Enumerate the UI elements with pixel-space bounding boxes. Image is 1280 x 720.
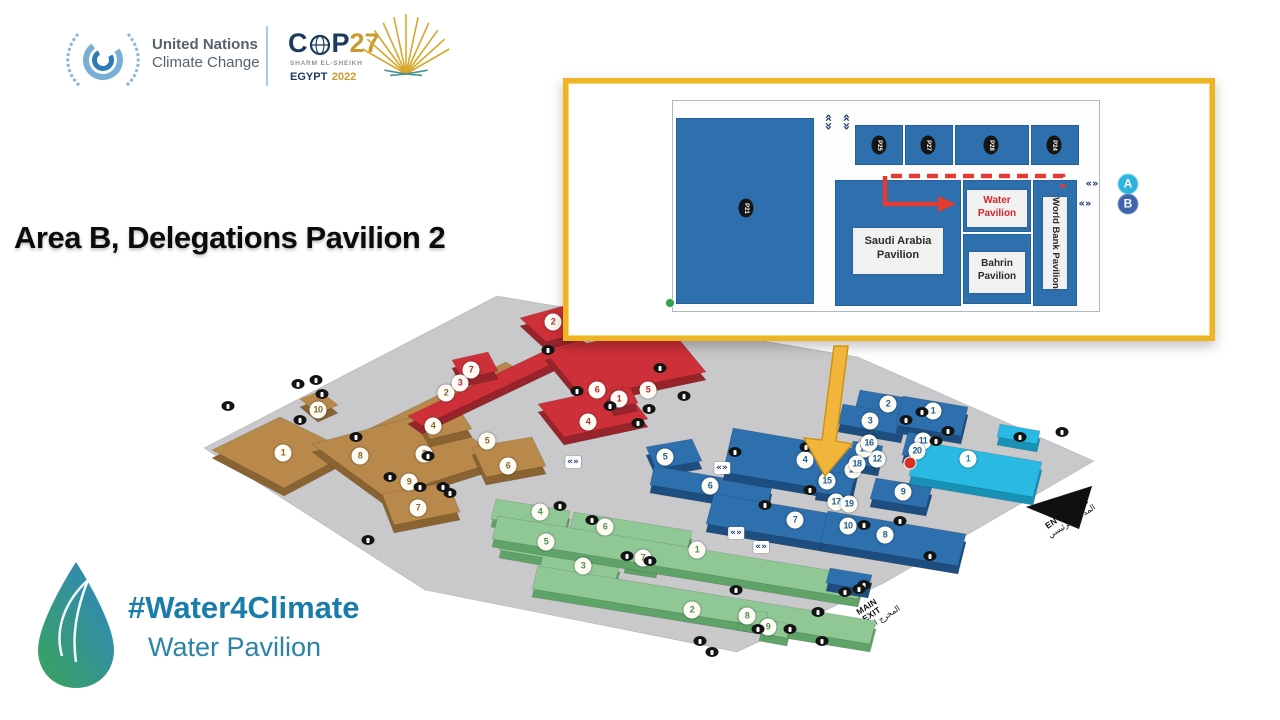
chevron-icon: «» (1079, 199, 1092, 210)
facility-icon (916, 407, 929, 417)
un-climate-change-logo (58, 22, 150, 94)
cop-year: 2022 (332, 71, 356, 83)
world-bank-label: World Bank Pavilion (1043, 197, 1067, 289)
un-wordmark: United Nations Climate Change (152, 36, 260, 72)
cop-p: P (332, 28, 350, 59)
green-dot-icon (665, 298, 675, 308)
facility-icon (930, 436, 943, 446)
building-badge-tan-6: 6 (500, 458, 517, 475)
building-badge-green-7: 7 (635, 550, 652, 567)
chevron-icon: «» (1086, 179, 1099, 190)
building-badge-blue-13: 13 (856, 441, 873, 458)
facility-icon (316, 389, 329, 399)
building-badge-red-2: 2 (545, 314, 562, 331)
facility-icon (654, 363, 667, 373)
facility-icon (924, 551, 937, 561)
facility-icon (942, 426, 955, 436)
building-badge-red-5: 5 (640, 382, 657, 399)
facility-icon (678, 391, 691, 401)
saudi-label-line2: Pavilion (853, 248, 943, 262)
inset-big-hall (676, 118, 814, 304)
facility-icon (586, 515, 599, 525)
pavilion-code-badge: P28 (984, 136, 999, 155)
inset-frame (563, 78, 1215, 341)
crossing-chevron-icon: «» (714, 462, 730, 474)
facility-icon (644, 556, 657, 566)
red-location-marker (904, 457, 917, 470)
saudi-arabia-label: Saudi Arabia Pavilion (853, 228, 943, 274)
building-badge-tan-10: 10 (310, 402, 327, 419)
route-arrowhead-icon (938, 196, 956, 212)
building-badge-blue-1: 1 (925, 403, 942, 420)
saudi-label-line1: Saudi Arabia (853, 234, 943, 248)
bahrain-label: Bahrin Pavilion (969, 252, 1025, 293)
building-badge-blue-2: 2 (880, 396, 897, 413)
cop27-subtitle: SHARM EL-SHEIKH EGYPT 2022 (290, 60, 363, 85)
facility-icon (621, 551, 634, 561)
facility-icon (706, 647, 719, 657)
facility-icon (730, 585, 743, 595)
bahrain-label-line1: Bahrin (969, 257, 1025, 270)
header-divider (266, 26, 268, 86)
building-badge-blue-4: 4 (797, 452, 814, 469)
building-badge-red-1: 1 (611, 391, 628, 408)
building-badge-blue-19: 19 (841, 496, 858, 513)
facility-icon (384, 472, 397, 482)
facility-icon (362, 535, 375, 545)
inset-top-block-2 (905, 125, 953, 165)
facility-icon (571, 386, 584, 396)
page-title: Area B, Delegations Pavilion 2 (14, 220, 559, 256)
building-badge-blue-15: 15 (819, 473, 836, 490)
inset-map-area (672, 100, 1100, 312)
building-badge-red-6: 6 (589, 382, 606, 399)
water-pavilion-block (963, 180, 1031, 232)
facility-icon (759, 500, 772, 510)
facility-icon (853, 584, 866, 594)
facility-icon (858, 520, 871, 530)
facility-icon (784, 624, 797, 634)
facility-icon (294, 415, 307, 425)
globe-icon (309, 34, 331, 56)
facility-icon (1056, 427, 1069, 437)
saudi-arabia-pavilion-block (835, 180, 961, 306)
inset-top-block-3 (955, 125, 1029, 165)
facility-icon (444, 488, 457, 498)
water-label-line2: Pavilion (967, 207, 1027, 220)
building-badge-green-5: 5 (538, 534, 555, 551)
crossing-chevron-icon: «» (753, 541, 769, 553)
hashtag-text: #Water4Climate (128, 590, 359, 626)
building-badge-blue-18: 18 (849, 456, 866, 473)
facility-icon (437, 482, 450, 492)
yellow-pointer-arrow-icon (804, 346, 852, 476)
building-badge-cyan-1: 1 (960, 451, 977, 468)
main-entrance-sign: MAIN ENTRANCE المدخل الرئيسي (1030, 483, 1104, 545)
vertical-chevron-icon: «» (839, 114, 854, 131)
crossing-chevron-icon: «» (728, 527, 744, 539)
facility-icon (804, 485, 817, 495)
marker-b: B (1118, 194, 1139, 215)
facility-icon (800, 442, 813, 452)
facility-icon (604, 401, 617, 411)
building-badge-red-7: 7 (463, 362, 480, 379)
world-bank-pavilion-block (1033, 180, 1077, 306)
facility-icon (894, 516, 907, 526)
building-badge-green-1: 1 (689, 542, 706, 559)
building-badge-blue-9: 9 (895, 484, 912, 501)
slide: United Nations Climate Change C P 27 SHA… (0, 0, 1280, 720)
facility-icon (729, 447, 742, 457)
bahrain-pavilion-block (963, 234, 1031, 304)
building-badge-red-3: 3 (452, 375, 469, 392)
building-badge-green-2: 2 (684, 602, 701, 619)
building-badge-blue-11: 11 (915, 433, 932, 450)
facility-icon (542, 345, 555, 355)
sunburst-icon (356, 8, 456, 88)
cop-egypt: EGYPT (290, 71, 327, 83)
building-badge-tan-8: 8 (352, 448, 369, 465)
building-badge-green-6: 6 (597, 519, 614, 536)
pavilion-code-badge: P25 (872, 136, 887, 155)
main-exit-sign: MAIN EXIT المخرج الرئيسي (839, 587, 905, 643)
building-badge-tan-1: 1 (275, 445, 292, 462)
facility-icon (816, 636, 829, 646)
facility-icon (632, 418, 645, 428)
crossing-chevron-icon: «» (565, 456, 581, 468)
facility-icon (422, 451, 435, 461)
building-badge-blue-6: 6 (702, 478, 719, 495)
facility-icon (812, 607, 825, 617)
facility-icon (858, 580, 871, 590)
building-badge-blue-14: 14 (845, 462, 862, 479)
facility-icon (839, 587, 852, 597)
facility-icon (310, 375, 323, 385)
building-badge-tan-3: 3 (416, 446, 433, 463)
building-badge-tan-2: 2 (438, 385, 455, 402)
building-badge-blue-5: 5 (657, 449, 674, 466)
building-badge-red-4: 4 (580, 414, 597, 431)
building-badge-green-3: 3 (575, 558, 592, 575)
facility-icon (350, 432, 363, 442)
cop-c: C (288, 28, 308, 59)
vertical-chevron-icon: «» (821, 114, 836, 131)
facility-icon (1014, 432, 1027, 442)
building-badge-blue-3: 3 (862, 413, 879, 430)
facility-icon (900, 415, 913, 425)
bahrain-label-line2: Pavilion (969, 270, 1025, 283)
building-badge-green-4: 4 (532, 504, 549, 521)
facility-icon (752, 624, 765, 634)
building-badge-tan-5: 5 (479, 433, 496, 450)
building-badge-blue-17: 17 (828, 494, 845, 511)
facility-icon (292, 379, 305, 389)
pavilion-code-badge: P24 (1047, 136, 1062, 155)
building-badge-blue-16: 16 (861, 435, 878, 452)
building-badge-blue-7: 7 (787, 512, 804, 529)
un-line1: United Nations (152, 36, 260, 54)
inset-top-block-4 (1031, 125, 1079, 165)
facility-icon (414, 482, 427, 492)
building-badge-blue-20: 20 (909, 443, 926, 460)
un-line2: Climate Change (152, 54, 260, 72)
facility-icon (643, 404, 656, 414)
water-pavilion-label: Water Pavilion (967, 190, 1027, 227)
building-badge-blue-8: 8 (877, 527, 894, 544)
inset-top-block-1 (855, 125, 903, 165)
pavilion-code-badge: P27 (921, 136, 936, 155)
water-label-line1: Water (967, 194, 1027, 207)
facility-icon (554, 501, 567, 511)
building-badge-green-8: 8 (739, 608, 756, 625)
building-badge-tan-9: 9 (401, 474, 418, 491)
building-badge-tan-7: 7 (410, 500, 427, 517)
pavilion-code-badge: P21 (739, 199, 754, 218)
building-badge-blue-12: 12 (869, 451, 886, 468)
building-badge-green-9: 9 (760, 619, 777, 636)
building-badge-blue-10: 10 (840, 518, 857, 535)
facility-icon (222, 401, 235, 411)
building-badge-tan-4: 4 (425, 418, 442, 435)
marker-a: A (1118, 174, 1139, 195)
water-drop-logo (32, 558, 120, 692)
cop-venue: SHARM EL-SHEIKH (290, 60, 363, 67)
facility-icon (694, 636, 707, 646)
water-pavilion-label: Water Pavilion (148, 632, 321, 663)
